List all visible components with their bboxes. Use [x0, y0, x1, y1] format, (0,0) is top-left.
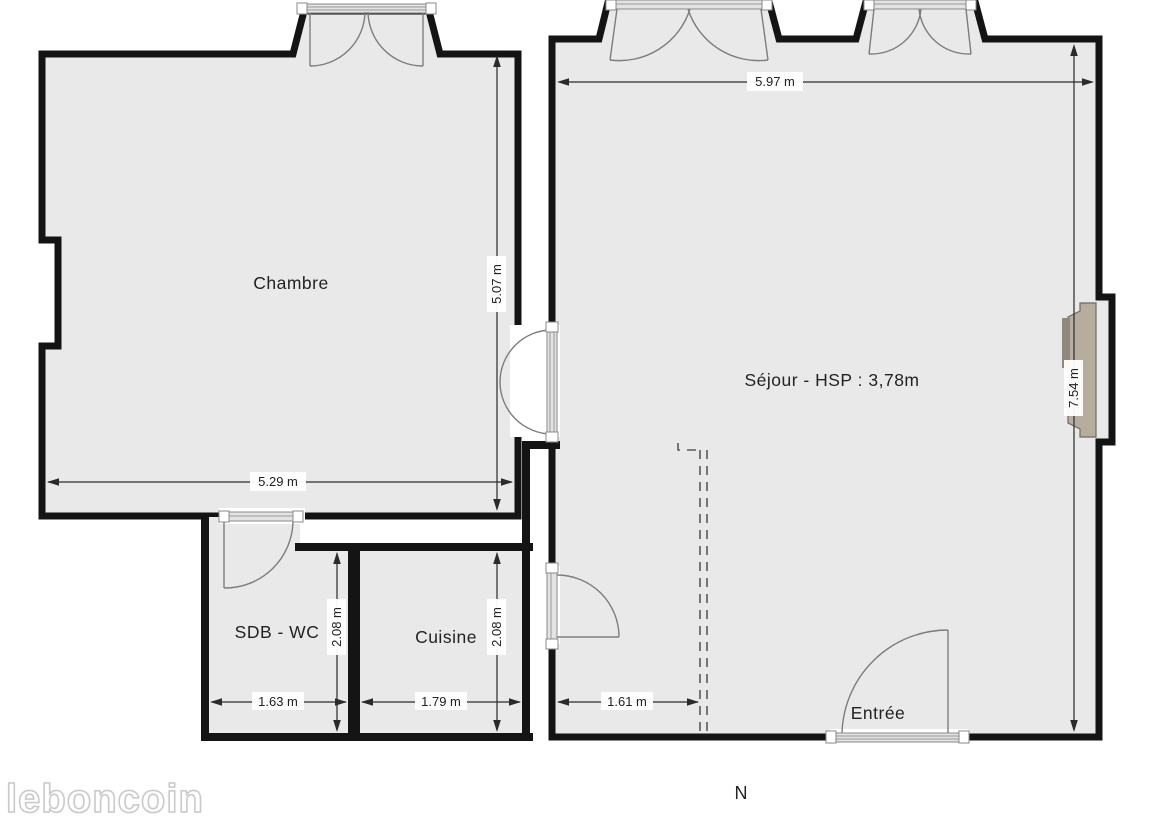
- chambre-walls: [42, 11, 518, 516]
- sejour-label: Séjour - HSP : 3,78m: [744, 370, 919, 390]
- sdb-label: SDB - WC: [235, 622, 320, 642]
- dim-sdb-height: 2.08 m: [329, 607, 344, 647]
- dim-sejour-partial-width: 1.61 m: [607, 694, 647, 709]
- entree-label: Entrée: [851, 703, 906, 723]
- bottom-wall-left: [201, 733, 533, 741]
- dim-cuisine-width: 1.79 m: [421, 694, 461, 709]
- chambre-label: Chambre: [253, 273, 328, 293]
- cuisine-top-wall: [295, 543, 533, 551]
- dim-sejour-width: 5.97 m: [755, 74, 795, 89]
- sejour-room: [552, 0, 1112, 737]
- dim-sdb-width: 1.63 m: [258, 694, 298, 709]
- dim-sejour-height: 7.54 m: [1066, 368, 1081, 408]
- chase-left-wall: [522, 441, 530, 741]
- sdb-left-wall: [201, 513, 209, 741]
- cuisine-label: Cuisine: [415, 627, 477, 647]
- dim-cuisine-height: 2.08 m: [489, 607, 504, 647]
- chambre-room: [42, 11, 518, 516]
- floor-plan: 5.97 m 5.07 m 5.29 m 7.54 m 2.08 m 2.08 …: [0, 0, 1152, 800]
- sejour-walls: [552, 0, 1112, 737]
- dim-chambre-width: 5.29 m: [258, 474, 298, 489]
- north-indicator: N: [735, 783, 748, 800]
- dim-chambre-height: 5.07 m: [489, 264, 504, 304]
- sdb-cuisine-wall: [348, 544, 360, 741]
